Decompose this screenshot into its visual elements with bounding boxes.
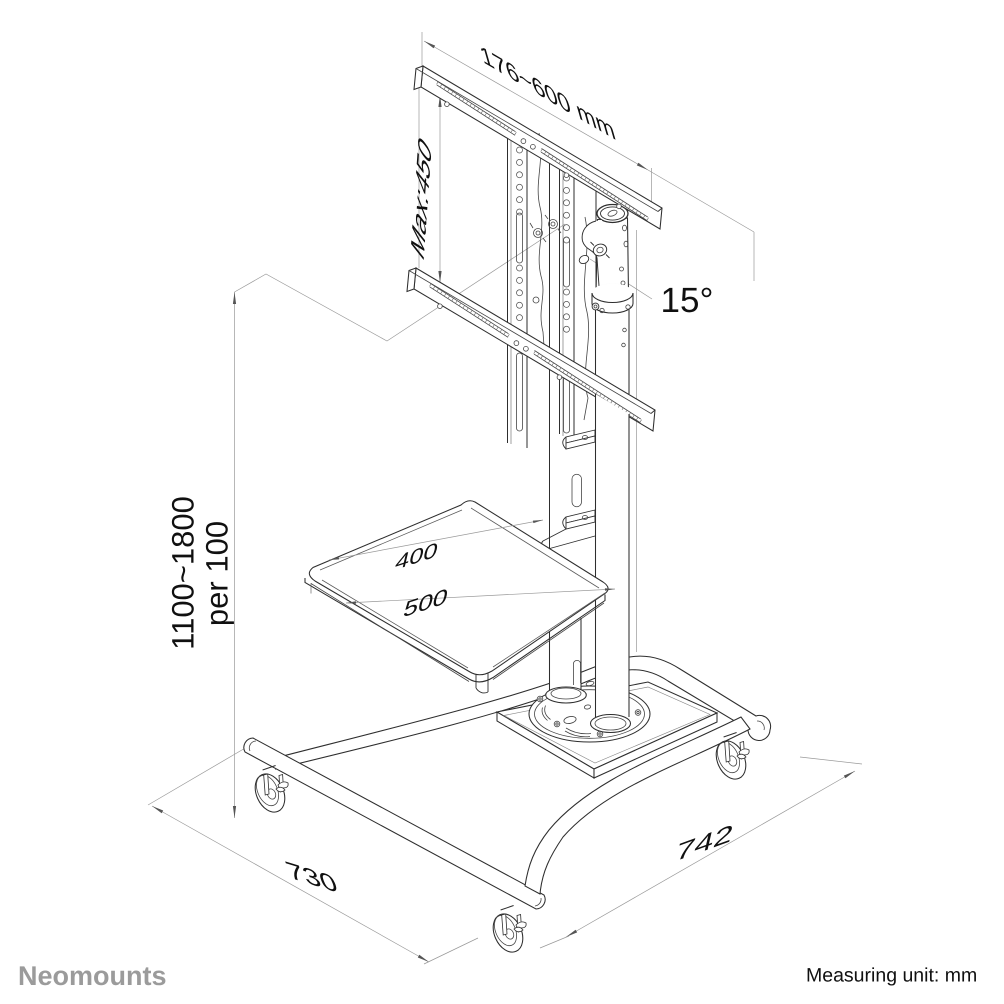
svg-text:Neomounts: Neomounts [18, 961, 167, 991]
svg-text:15°: 15° [661, 281, 714, 320]
svg-text:per 100: per 100 [200, 521, 235, 626]
svg-text:Measuring unit: mm: Measuring unit: mm [806, 965, 977, 987]
svg-text:1100~1800: 1100~1800 [166, 496, 201, 650]
